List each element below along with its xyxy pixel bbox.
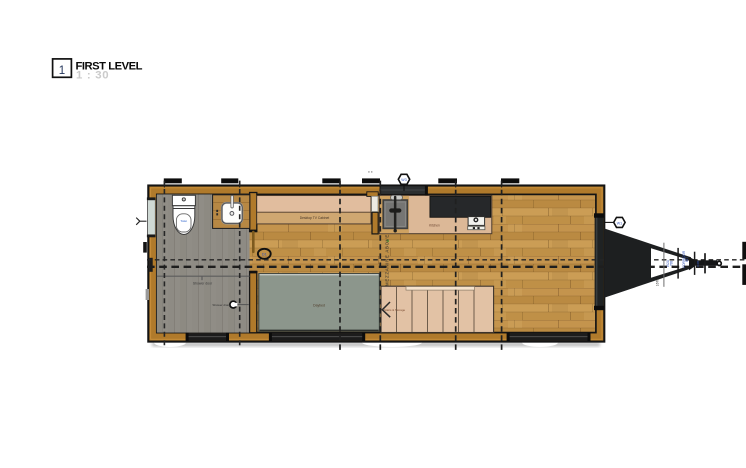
svg-text:Toilet: Toilet	[180, 219, 187, 223]
svg-text:Shower drain: Shower drain	[212, 303, 230, 307]
svg-text:788: 788	[670, 261, 674, 267]
svg-text:D4B: D4B	[696, 261, 700, 267]
svg-text:Kitchen: Kitchen	[429, 223, 440, 227]
svg-text:Shower door: Shower door	[193, 282, 213, 286]
svg-text:Daybed: Daybed	[313, 303, 325, 307]
svg-text:D1: D1	[262, 252, 268, 257]
svg-text:W1: W1	[617, 221, 622, 225]
svg-text:1: 1	[59, 65, 65, 77]
svg-text:1 : 30: 1 : 30	[76, 70, 109, 82]
svg-text:1678: 1678	[655, 279, 659, 287]
svg-text:Stairs & Storage: Stairs & Storage	[384, 308, 405, 312]
svg-text:817: 817	[685, 257, 689, 263]
svg-text:W3: W3	[401, 178, 406, 182]
svg-text:Desktop TV Cabinet: Desktop TV Cabinet	[300, 216, 330, 220]
